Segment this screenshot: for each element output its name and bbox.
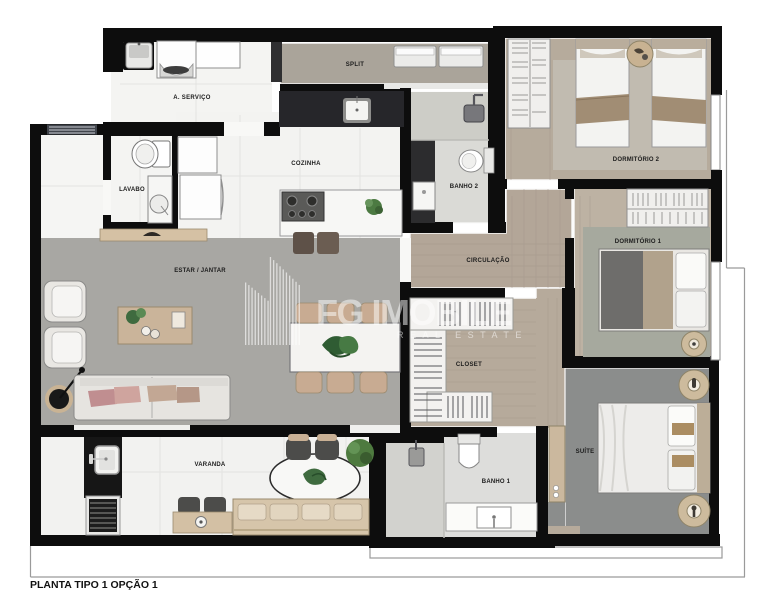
svg-text:BANHO 1: BANHO 1 bbox=[482, 479, 511, 485]
svg-text:COZINHA: COZINHA bbox=[291, 161, 321, 167]
svg-text:REAL ESTATE: REAL ESTATE bbox=[397, 330, 528, 340]
svg-text:VARANDA: VARANDA bbox=[195, 462, 226, 468]
svg-text:SPLIT: SPLIT bbox=[346, 62, 365, 68]
svg-text:BANHO 2: BANHO 2 bbox=[450, 184, 479, 190]
svg-text:DORMITÓRIO 1: DORMITÓRIO 1 bbox=[615, 237, 662, 245]
svg-text:ESTAR / JANTAR: ESTAR / JANTAR bbox=[174, 268, 226, 274]
svg-text:A. SERVIÇO: A. SERVIÇO bbox=[173, 95, 211, 101]
svg-text:CIRCULAÇÃO: CIRCULAÇÃO bbox=[466, 257, 509, 264]
svg-text:SUÍTE: SUÍTE bbox=[576, 447, 595, 455]
svg-text:FG IMOBILE: FG IMOBILE bbox=[316, 292, 511, 333]
svg-text:CLOSET: CLOSET bbox=[456, 362, 482, 368]
svg-text:LAVABO: LAVABO bbox=[119, 187, 145, 193]
svg-text:DORMITÓRIO 2: DORMITÓRIO 2 bbox=[613, 155, 660, 163]
svg-text:PLANTA TIPO 1 OPÇÃO 1: PLANTA TIPO 1 OPÇÃO 1 bbox=[30, 578, 158, 591]
